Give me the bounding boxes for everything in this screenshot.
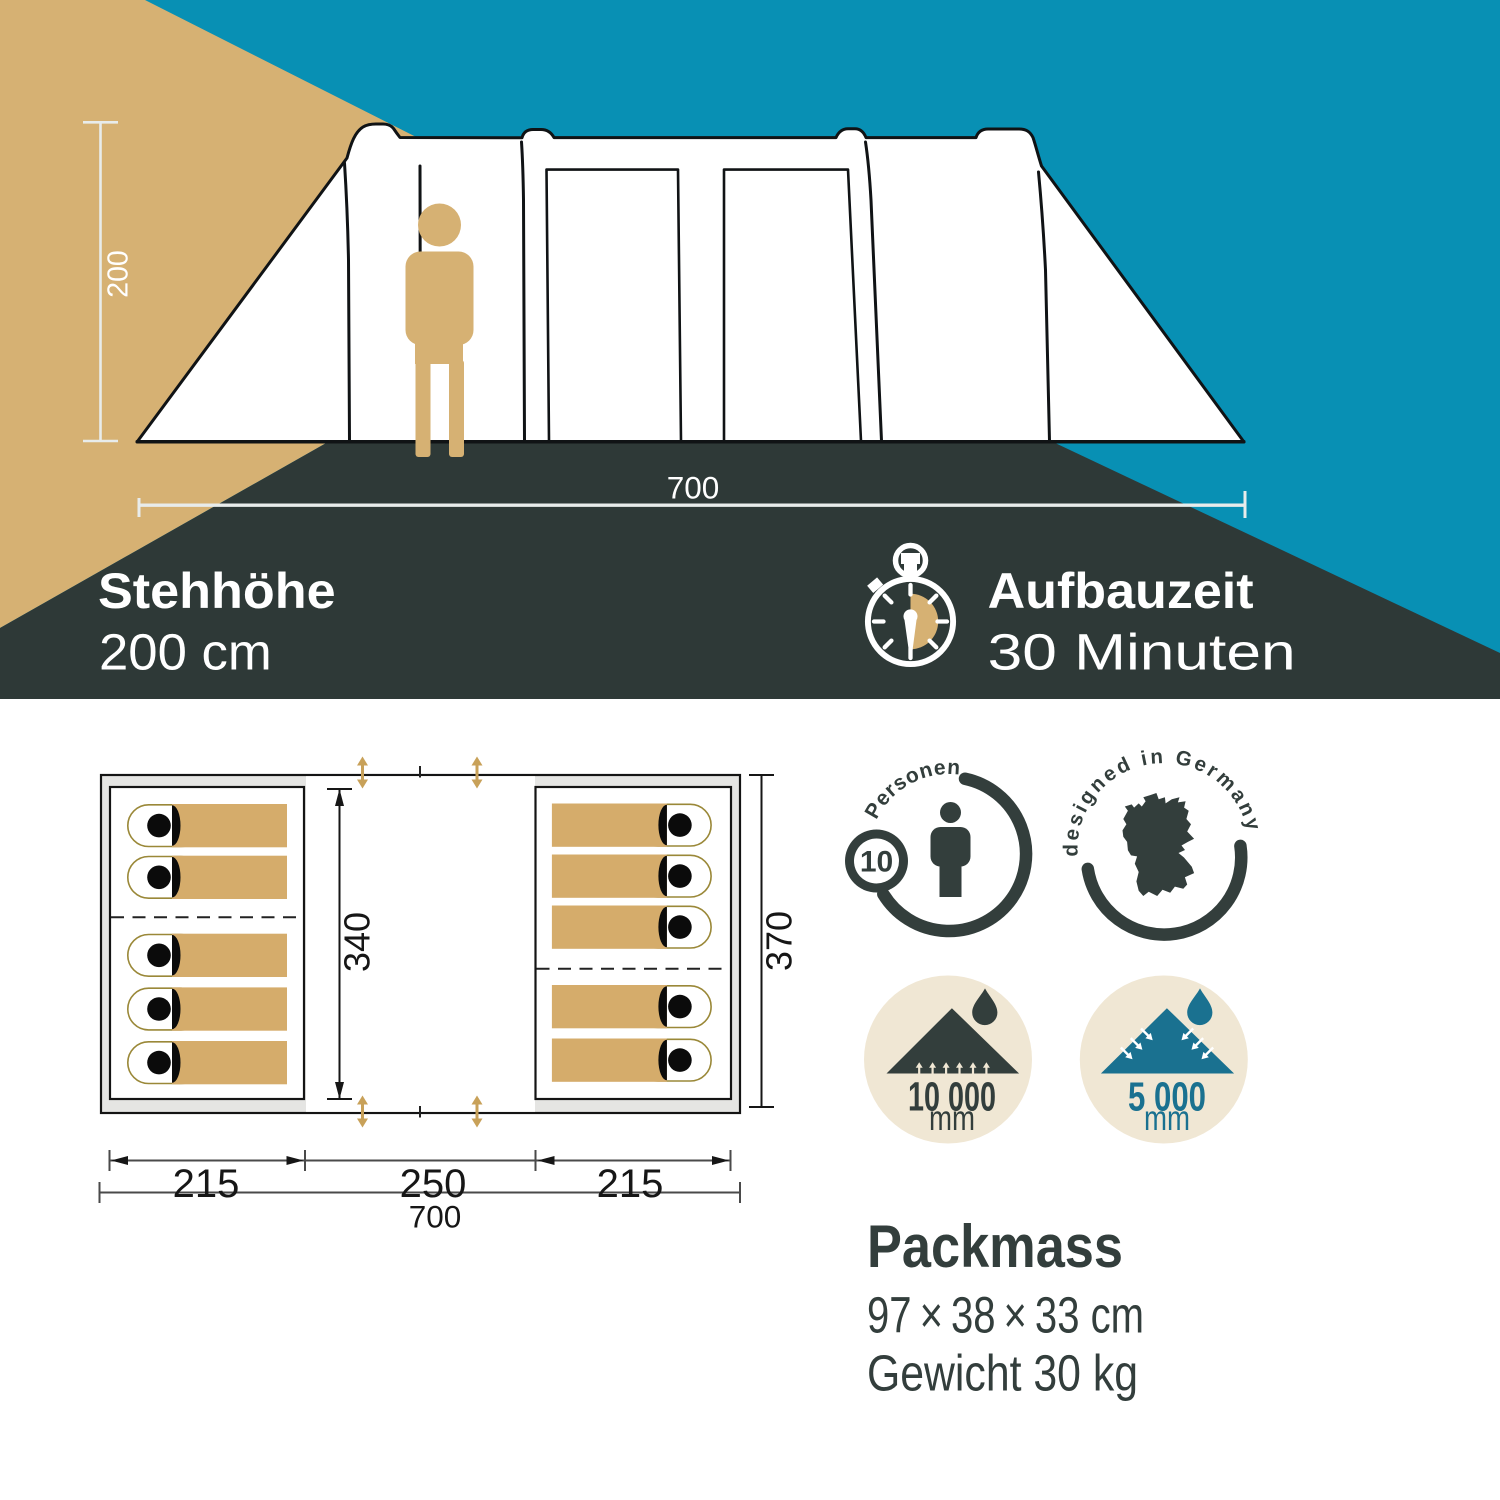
svg-text:215: 215: [597, 1162, 664, 1206]
svg-text:mm: mm: [929, 1099, 975, 1138]
svg-text:215: 215: [173, 1162, 240, 1206]
svg-text:Aufbauzeit: Aufbauzeit: [988, 563, 1254, 619]
svg-text:10: 10: [860, 846, 893, 879]
svg-text:340: 340: [337, 912, 378, 972]
svg-text:97 × 38 × 33 cm: 97 × 38 × 33 cm: [867, 1287, 1144, 1344]
svg-text:30 Minuten: 30 Minuten: [988, 623, 1296, 680]
svg-text:Stehhöhe: Stehhöhe: [98, 563, 336, 619]
svg-text:mm: mm: [1144, 1099, 1190, 1138]
svg-text:700: 700: [409, 1199, 462, 1235]
svg-text:Gewicht 30 kg: Gewicht 30 kg: [867, 1345, 1138, 1402]
svg-text:700: 700: [667, 470, 720, 506]
svg-text:Packmass: Packmass: [867, 1213, 1123, 1280]
svg-text:200: 200: [103, 250, 135, 298]
svg-text:370: 370: [759, 911, 800, 971]
svg-text:200 cm: 200 cm: [99, 623, 272, 680]
